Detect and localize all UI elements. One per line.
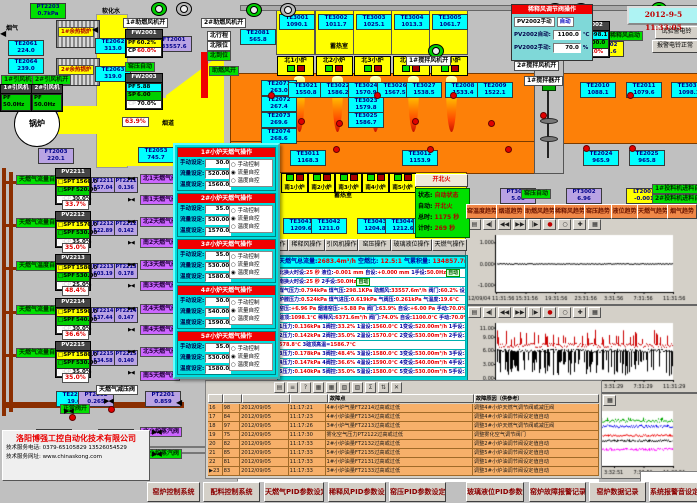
south-furnace-4: 南4小炉: [362, 173, 389, 193]
panel-title: FW2003: [126, 74, 162, 83]
gas-valve-north-4[interactable]: ▶◀: [128, 307, 134, 312]
sensor-dot-0: [268, 92, 275, 99]
bell-button-1[interactable]: 报警电铃正常: [652, 40, 697, 53]
label-38: 天燃气减压阀: [96, 385, 138, 395]
pv2002-mode-value: 自动: [557, 17, 574, 27]
alarm-row-16[interactable]: 16982012/09/0511:17:214#小炉气量FT2214过高或过低调…: [208, 404, 599, 413]
alarm-header-cell: [223, 394, 241, 403]
alarm-row-23[interactable]: ▶23832012/09/0511:17:333#小炉油量FT2133过高或过低…: [208, 467, 599, 476]
trend-canvas[interactable]: [466, 231, 695, 304]
run-indicator: [340, 174, 348, 181]
run-indicator: [364, 65, 372, 72]
run-indicator: [325, 65, 333, 72]
popup-section-title: 3#小炉天燃气操作: [178, 240, 275, 249]
alarm-cell: 3#小炉气量FT2213过高或过低: [326, 422, 473, 431]
fan-panel-1#引风机: 1#引风机PF 50.0Hz: [0, 84, 32, 112]
alarm-row-22[interactable]: 22812012/09/0511:17:331#小炉油量FT2131过高或过低调…: [208, 458, 599, 467]
pv2002-manual-button[interactable]: PV2002手动: [514, 17, 555, 27]
label-11: 1#搅拌风机开: [406, 56, 451, 66]
pump-hub: [284, 6, 292, 14]
tag-value: 565.8: [241, 37, 275, 44]
stop-indicator: [350, 174, 358, 181]
gas-valve-north-1[interactable]: ▶◀: [128, 177, 134, 182]
sensor-dot-4: [412, 118, 419, 125]
op-button-4[interactable]: 玻璃液位操作: [391, 239, 432, 251]
pump-icon-0: [151, 2, 167, 16]
pv2002-manual-unit: %: [583, 44, 589, 52]
sensor-dot-9: [629, 145, 636, 152]
tag-TE2025: TE2025965.8: [629, 150, 665, 166]
label-20: 窑压自动: [521, 189, 551, 199]
label-13: 1#搅拌器开: [524, 76, 563, 86]
tag-PT2215: PT22150.140: [114, 350, 138, 366]
tag-id: TE2074: [262, 129, 296, 136]
alarm-row-17[interactable]: 17842012/09/0511:17:234#小炉油量FT2134过高或过低调…: [208, 413, 599, 422]
field-input[interactable]: 30.0: [205, 159, 231, 168]
sensor-dot-12: [427, 146, 434, 153]
tag-TE2061: TE2061224.0: [8, 40, 44, 56]
trend-button-2[interactable]: 助燃风趋势: [524, 204, 555, 219]
valve-output-5: 35.0%: [62, 373, 89, 383]
alarm-cell: 11:17:30: [289, 431, 326, 440]
tag-id: TE3023: [349, 98, 383, 105]
alarm-header-cell: [242, 394, 291, 403]
trend-tool-icon-4[interactable]: |▶: [528, 219, 541, 230]
alarm-cell: 调整雾化空气调节阀门: [473, 431, 599, 440]
alarm-cell: 11:17:23: [289, 413, 326, 422]
alarm-cell: 调整5#小炉油调节阀设定值自动: [473, 449, 599, 458]
popup-section-title: 5#小炉天燃气操作: [178, 332, 275, 341]
alarm-cell: 11:17:21: [289, 404, 326, 413]
tag-id: TE3031: [672, 83, 697, 90]
alarm-cell: 11:17:33: [289, 440, 326, 449]
tag-TE3042: TE30421211.0: [311, 218, 347, 234]
sensor-dot-15: [108, 406, 115, 413]
stop-indicator: [412, 65, 420, 72]
trend-tool-icon-5[interactable]: ●: [543, 307, 556, 318]
gas-total-banner: 天燃气总流量:2683.4m³/h 空燃比: 12.5:1 气累积量: 1348…: [278, 256, 466, 268]
alarm-cell: 1#小炉油量FT2131过高或过低: [326, 458, 473, 467]
tag-value: 745.7: [139, 155, 173, 162]
alarm-header-cell: 故障点: [328, 394, 474, 403]
radio-流量自控[interactable]: ◉ 流量自控: [231, 307, 271, 315]
label-14: 稀释风启动: [607, 31, 643, 41]
bottom-button-0[interactable]: 窑炉控制系统: [147, 482, 200, 502]
popup-section-title: 4#小炉天燃气操作: [178, 286, 275, 295]
radio-温度自控[interactable]: ○ 温度自控: [231, 177, 271, 185]
trend-button-0[interactable]: 窑温度趋势: [466, 204, 497, 219]
alarm-cell: 21: [208, 449, 223, 458]
sensor-dot-3: [374, 92, 381, 99]
gas-valve-south-1[interactable]: ▶◀: [128, 198, 134, 203]
trend-tool-icon-3[interactable]: ▶▶: [513, 307, 526, 318]
stop-indicator: [323, 174, 331, 181]
radio-温度自控[interactable]: ○ 温度自控: [231, 223, 271, 231]
label-5: 北限位: [207, 41, 231, 51]
tag-value: 1088.1: [581, 90, 615, 97]
field-label: 手动设定:: [180, 252, 204, 259]
trend-tool-icon-6[interactable]: ○: [558, 219, 571, 230]
tag-TE2009: TE20091522.1: [477, 82, 513, 98]
trend-button-3[interactable]: 稀释风趋势: [554, 204, 585, 219]
alarm-cell: 82: [223, 440, 241, 449]
popup-section-1: 1#小炉天燃气操作手动设定:30.0%流量设定:520.00m³/h温度设定:1…: [177, 147, 276, 191]
tag-value: 1522.1: [478, 90, 512, 97]
param-row-11: 5压力:0.140kPa 5阀控:35.0% 5温设:1580.0℃ 5变设:5…: [278, 367, 466, 377]
field-label: 温度设定:: [180, 274, 204, 281]
north-furnace-1: 北1小炉: [277, 56, 314, 76]
alarm-row-18[interactable]: 18972012/09/0511:17:263#小炉气量FT2213过高或过低调…: [208, 422, 599, 431]
op-button-1[interactable]: 稀释风操作: [288, 239, 325, 251]
bottom-button-2[interactable]: 天燃气PID参数设定: [264, 482, 324, 502]
alarm-tool-icon-7[interactable]: Σ: [365, 382, 376, 393]
panel-row-SPF: □SPF530.00: [57, 273, 89, 281]
gas-valve-south-5[interactable]: ▶◀: [128, 371, 134, 376]
tag-TE3021: TE30211550.8: [288, 82, 324, 98]
radio-手动控制[interactable]: ○ 手动控制: [231, 253, 271, 261]
tag-TE2081: TE2081565.8: [240, 29, 276, 45]
control-mode-radios: ○ 手动控制○ 流量自控◉ 温度自控: [229, 251, 273, 279]
exchanger-label-1: 1#余热锅炉: [58, 27, 94, 37]
trend-toolbar: ▤◀|◀◀▶▶|▶●○✚▦: [466, 306, 697, 319]
popup-section-4: 4#小炉天燃气操作手动设定:30.0%流量设定:540.00m³/h温度设定:1…: [177, 285, 276, 329]
label-2: 1#助燃风机开: [123, 18, 168, 28]
pump-hub: [180, 5, 188, 13]
panel-row-SPF: □SPF520.00: [57, 187, 89, 195]
gas-valve-south-2[interactable]: ▶◀: [128, 241, 134, 246]
tag-id: TE3003: [357, 15, 391, 22]
field-input[interactable]: 1590.0: [205, 319, 231, 328]
pv2002-auto-input[interactable]: 1100.0: [553, 30, 581, 40]
north-furnace-3: 北3小炉: [354, 56, 391, 76]
label-6: 北到位: [207, 51, 231, 61]
radio-流量自控[interactable]: ◉ 流量自控: [231, 169, 271, 177]
bottom-button-5[interactable]: 玻璃液位PID参数设定: [466, 482, 524, 502]
tag-value: 1011.7: [319, 22, 353, 29]
trend-button-5[interactable]: 液位趋势: [611, 204, 638, 219]
radio-手动控制[interactable]: ○ 手动控制: [231, 161, 271, 169]
steam-valve-n[interactable]: ▶◀: [152, 430, 161, 435]
label-8: 助燃风开: [209, 66, 239, 76]
field-input[interactable]: 520.00: [205, 170, 231, 179]
tag-id: TE2009: [478, 83, 512, 90]
alarm-cell: 3#小炉油量FT2133过高或过低: [326, 467, 473, 476]
trend-tool-icon-7[interactable]: ✚: [573, 219, 586, 230]
alarm-cell: 16: [208, 404, 223, 413]
field-label: 温度设定:: [180, 366, 204, 373]
alarm-toolbar: ▤≡?▦▦▧▨Σ⇅✕: [274, 382, 402, 393]
label-16: 63.9%: [122, 117, 149, 127]
trend-tool-icon-8[interactable]: ▦: [588, 219, 601, 230]
panel-title: PV2211: [56, 169, 90, 178]
pv2002-manual-input[interactable]: 70.0: [553, 43, 581, 53]
field-input[interactable]: 1570.0: [205, 227, 231, 236]
alarm-tool-icon-3[interactable]: ▦: [313, 382, 324, 393]
op-button-2[interactable]: 引风机操作: [325, 239, 358, 251]
alarm-cell: 17: [208, 413, 223, 422]
tag-value: 1153.9: [403, 158, 437, 165]
furnace-name: 南2小炉: [309, 184, 334, 192]
alarm-cell: 调整4#小炉油调节阀设定值自动: [473, 413, 599, 422]
radio-手动控制[interactable]: ○ 手动控制: [231, 207, 271, 215]
sensor-dot-11: [333, 146, 340, 153]
tag-TE2053: TE2053745.7: [138, 147, 174, 163]
sensor-dot-14: [69, 414, 76, 421]
trend-tool-icon-0[interactable]: ▤: [468, 307, 481, 318]
bottom-button-1[interactable]: 配料控制系统: [203, 482, 260, 502]
company-website[interactable]: 技术服务网址: www.chinaskong.com: [3, 453, 149, 462]
start-north-fire-button[interactable]: 开北火: [415, 174, 468, 187]
alarm-tool-icon-5[interactable]: ▧: [339, 382, 350, 393]
field-input[interactable]: 1580.0: [205, 365, 231, 374]
dilution-valve-panel: 稀释风调节阀操作 PV2002手动 自动 PV2002自动: 1100.0 ℃ …: [511, 4, 593, 61]
pump-hub: [250, 6, 258, 14]
trend-tool-icon-4[interactable]: |▶: [528, 307, 541, 318]
panel-row-CP: CP70.0%: [127, 101, 161, 109]
panel-row-SP: SP6.00: [127, 92, 161, 100]
tag-value: 1586.7: [349, 120, 383, 127]
alarm-cell: 22: [208, 458, 223, 467]
valve-output-2: 35.0%: [62, 243, 89, 253]
trend-tool-icon-6[interactable]: ○: [558, 307, 571, 318]
furnace-name: 南5小炉: [390, 184, 415, 192]
alarm-cell: 2012/09/05: [240, 422, 289, 431]
tag-value: 268.6: [262, 136, 296, 143]
panel-title: PV2215: [56, 342, 90, 351]
bottom-button-4[interactable]: 窑压PID参数设定: [389, 482, 446, 502]
radio-流量自控[interactable]: ◉ 流量自控: [231, 215, 271, 223]
panel-row-SPF: □SPF540.00: [57, 317, 89, 325]
radio-流量自控[interactable]: ◉ 流量自控: [231, 353, 271, 361]
field-label: 手动设定:: [180, 344, 204, 351]
panel-FW2001: FW2001PF60.2%CP60.0%: [125, 29, 163, 58]
stop-indicator: [297, 65, 305, 72]
firing-status-box: 状态: 自动状态自动: 开北火总时: 1175 秒计时: 269 秒: [415, 188, 470, 238]
field-input[interactable]: 1560.0: [205, 181, 231, 190]
alarm-tool-icon-8[interactable]: ⇅: [378, 382, 389, 393]
field-input[interactable]: 30.0: [205, 297, 231, 306]
label-7: 窑压自动: [125, 62, 155, 72]
valve-output-1: 33.7%: [62, 200, 89, 210]
popup-section-title: 2#小炉天燃气操作: [178, 194, 275, 203]
trend-tool-icon-9[interactable]: ▦: [603, 395, 616, 406]
panel-row-SPF: □SPF530.00: [57, 360, 89, 368]
run-indicator: [287, 65, 295, 72]
alarm-tool-icon-6[interactable]: ▨: [352, 382, 363, 393]
status-row: 计时: 269 秒: [418, 223, 469, 234]
field-label: 温度设定:: [180, 228, 204, 235]
tag-id: TE2025: [630, 151, 664, 158]
label-1: 软化水: [100, 8, 122, 16]
tag-id: PT3002: [567, 189, 601, 196]
op-button-5[interactable]: 天燃气操作: [432, 239, 467, 251]
gas-valve-south-3[interactable]: ▶◀: [128, 284, 134, 289]
run-indicator: [313, 174, 321, 181]
tag-id: FT2003: [39, 149, 73, 156]
radio-温度自控[interactable]: ○ 温度自控: [231, 361, 271, 369]
tag-TE2074: TE2074268.6: [261, 128, 297, 144]
field-input[interactable]: 1580.0: [205, 273, 231, 282]
tag-id: TE3021: [289, 83, 323, 90]
alarm-cell: ▶23: [208, 467, 223, 476]
sensor-dot-5: [450, 92, 457, 99]
alarm-cell: 2#小炉油量FT2132过高或过低: [326, 440, 473, 449]
furnace-name: 南3小炉: [336, 184, 361, 192]
tag-id: PT2203: [31, 4, 65, 11]
field-input[interactable]: 35.0: [205, 343, 231, 352]
fan-freq: PF 50.0Hz: [2, 95, 30, 110]
tag-PT2203: PT22030.7kPa: [30, 3, 66, 19]
stop-indicator: [296, 174, 304, 181]
panel-row-PF: PF5.88: [127, 84, 161, 92]
status-row: 状态: 自动状态: [418, 190, 469, 201]
trend-tool-icon-2[interactable]: ◀◀: [498, 307, 511, 318]
alarm-tool-icon-0[interactable]: ▤: [274, 382, 285, 393]
trend-button-7[interactable]: 烟气趋势: [667, 204, 697, 219]
run-indicator: [402, 65, 410, 72]
tag-value: 1579.8: [349, 105, 383, 112]
alarm-cell: 2012/09/05: [240, 449, 289, 458]
bottom-button-7[interactable]: 窑炉数据记录: [589, 482, 646, 502]
field-input[interactable]: 540.00: [205, 308, 231, 317]
alarm-tool-icon-4[interactable]: ▦: [326, 382, 337, 393]
tag-id: TE2064: [9, 59, 43, 66]
tag-id: TE2008: [446, 83, 480, 90]
trend-tool-icon-7[interactable]: ✚: [573, 307, 586, 318]
trend-tool-icon-2[interactable]: ◀◀: [498, 219, 511, 230]
tag-id: TE3002: [319, 15, 353, 22]
tag-id: TE2024: [584, 151, 618, 158]
panel-row-SPT: □SPT1580.0: [57, 265, 89, 273]
trend-tool-icon-1[interactable]: ◀|: [483, 307, 496, 318]
radio-温度自控[interactable]: ◉ 温度自控: [231, 269, 271, 277]
tag-value: 220.1: [39, 156, 73, 163]
sensor-dot-8: [583, 145, 590, 152]
gas-valve-south-4[interactable]: ▶◀: [128, 328, 134, 333]
pressure-reducing-valve[interactable]: ▶◀: [104, 399, 113, 404]
valve-output-3: 48.4%: [62, 286, 89, 296]
field-label: 手动设定:: [180, 160, 204, 167]
furnace-name: 南4小炉: [363, 184, 388, 192]
tag-TE3005: TE30051061.7: [432, 14, 468, 30]
south-furnace-5: 南5小炉: [389, 173, 416, 193]
field-input[interactable]: 35.0: [205, 205, 231, 214]
tag-TE2072: TE2072267.4: [261, 96, 297, 112]
tag-TE3025: TE30251586.7: [348, 112, 384, 128]
alarm-cell: 调整3#小炉油调节阀设定值自动: [473, 467, 599, 476]
run-indicator: [394, 174, 402, 181]
panel-row-SPT: □SPT1590.0: [57, 309, 89, 317]
trend-panel-glass-level-trend: ▤◀|◀◀▶▶|▶●○✚▦: [465, 217, 697, 305]
field-input[interactable]: 530.00: [205, 216, 231, 225]
trend-button-1[interactable]: 烟道趋势: [496, 204, 525, 219]
steam-valve-s[interactable]: ▶◀: [152, 452, 161, 457]
alarm-row-19[interactable]: 19752012/09/0511:17:30雾化空气压力PT2122过高或过低调…: [208, 431, 599, 440]
gas-valve-north-3[interactable]: ▶◀: [128, 263, 134, 268]
hmi-furnace-screen: 锅炉 1#余热锅炉 2#余热锅炉 稀释风调节阀操作 PV2002手动 自动 PV…: [0, 0, 697, 503]
tag-TE3003: TE30031025.1: [356, 14, 392, 30]
trend-button-4[interactable]: 窑压趋势: [584, 204, 612, 219]
tag-value: 1211.0: [312, 226, 346, 233]
status-strip-right[interactable]: [640, 471, 697, 482]
alarm-cell: 20: [208, 440, 223, 449]
tag-value: 267.4: [262, 104, 296, 111]
control-mode-radios: ○ 手动控制◉ 流量自控○ 温度自控: [229, 159, 273, 187]
radio-手动控制[interactable]: ○ 手动控制: [231, 299, 271, 307]
tag-value: 1025.1: [357, 22, 391, 29]
tag-TE3027: TE30271538.5: [406, 82, 442, 98]
alarm-cell: 11:17:26: [289, 422, 326, 431]
south-furnace-2: 南2小炉: [308, 173, 335, 193]
tag-value: 1013.3: [395, 22, 429, 29]
alarm-cell: 85: [223, 449, 241, 458]
gas-valve-north-5[interactable]: ▶◀: [128, 350, 134, 355]
field-input[interactable]: 530.00: [205, 262, 231, 271]
tag-value: 6.96: [567, 196, 601, 203]
tag-id: TE2010: [581, 83, 615, 90]
trend-tool-icon-5[interactable]: ●: [543, 219, 556, 230]
main-line-valve[interactable]: ▶◀: [64, 409, 73, 414]
alarm-cell: 2012/09/05: [240, 431, 289, 440]
trend-tool-icon-8[interactable]: ▦: [588, 307, 601, 318]
alarm-header-cell: [208, 394, 223, 403]
trend-tool-icon-3[interactable]: ▶▶: [513, 219, 526, 230]
radio-温度自控[interactable]: ○ 温度自控: [231, 315, 271, 323]
furnace-name: 北3小炉: [355, 57, 390, 65]
trend-tool-icon-1[interactable]: ◀|: [483, 219, 496, 230]
alarm-cell: 18: [208, 422, 223, 431]
tag-PT2214: PT22140.147: [114, 307, 138, 323]
gas-main-vertical: [2, 168, 6, 416]
field-input[interactable]: 35.0: [205, 251, 231, 260]
bottom-button-3[interactable]: 稀释风PID参数设定: [328, 482, 386, 502]
control-mode-radios: ○ 手动控制◉ 流量自控○ 温度自控: [229, 205, 273, 233]
field-input[interactable]: 530.00: [205, 354, 231, 363]
radio-流量自控[interactable]: ○ 流量自控: [231, 261, 271, 269]
alarm-cell: 调整2#小炉油调节阀设定值自动: [473, 440, 599, 449]
tag-TE3011: TE30111168.3: [290, 150, 326, 166]
tag-value: 1550.8: [289, 90, 323, 97]
op-button-3[interactable]: 窑压操作: [358, 239, 391, 251]
bottom-button-8[interactable]: 系统报警音设定: [649, 482, 697, 502]
stop-indicator: [335, 65, 343, 72]
alarm-cell: 4#小炉油量FT2134过高或过低: [326, 413, 473, 422]
tag-id: TE2073: [262, 113, 296, 120]
alarm-cell: 84: [223, 413, 241, 422]
alarm-tool-icon-9[interactable]: ✕: [391, 382, 402, 393]
status-row: 总时: 1175 秒: [418, 212, 469, 223]
tag-value: 224.0: [9, 48, 43, 55]
tag-id: TE3042: [312, 219, 346, 226]
popup-section-title: 1#小炉天燃气操作: [178, 148, 275, 157]
radio-手动控制[interactable]: ○ 手动控制: [231, 345, 271, 353]
bottom-button-6[interactable]: 窑炉故障报警记录: [529, 482, 586, 502]
alarm-tool-icon-2[interactable]: ?: [300, 382, 311, 393]
fan-panel-2#引风机: 2#引风机PF 50.0Hz: [31, 84, 63, 112]
alarm-row-21[interactable]: 21852012/09/0511:17:335#小炉油量FT2135过高或过低调…: [208, 449, 599, 458]
alarm-tool-icon-1[interactable]: ≡: [287, 382, 298, 393]
alarm-cell: 2012/09/05: [240, 440, 289, 449]
gas-valve-north-2[interactable]: ▶◀: [128, 220, 134, 225]
panel-row-SPT: □SPT1580.0: [57, 352, 89, 360]
panel-title: FW2001: [126, 30, 162, 39]
tag-id: PT2201: [146, 392, 180, 399]
control-mode-radios: ○ 手动控制◉ 流量自控○ 温度自控: [229, 343, 273, 371]
tag-value: 965.8: [630, 158, 664, 165]
flow-arrow-1: ◀: [92, 25, 98, 34]
trend-button-6[interactable]: 天燃气趋势: [637, 204, 668, 219]
alarm-row-20[interactable]: 20822012/09/0511:17:332#小炉油量FT2132过高或过低调…: [208, 440, 599, 449]
